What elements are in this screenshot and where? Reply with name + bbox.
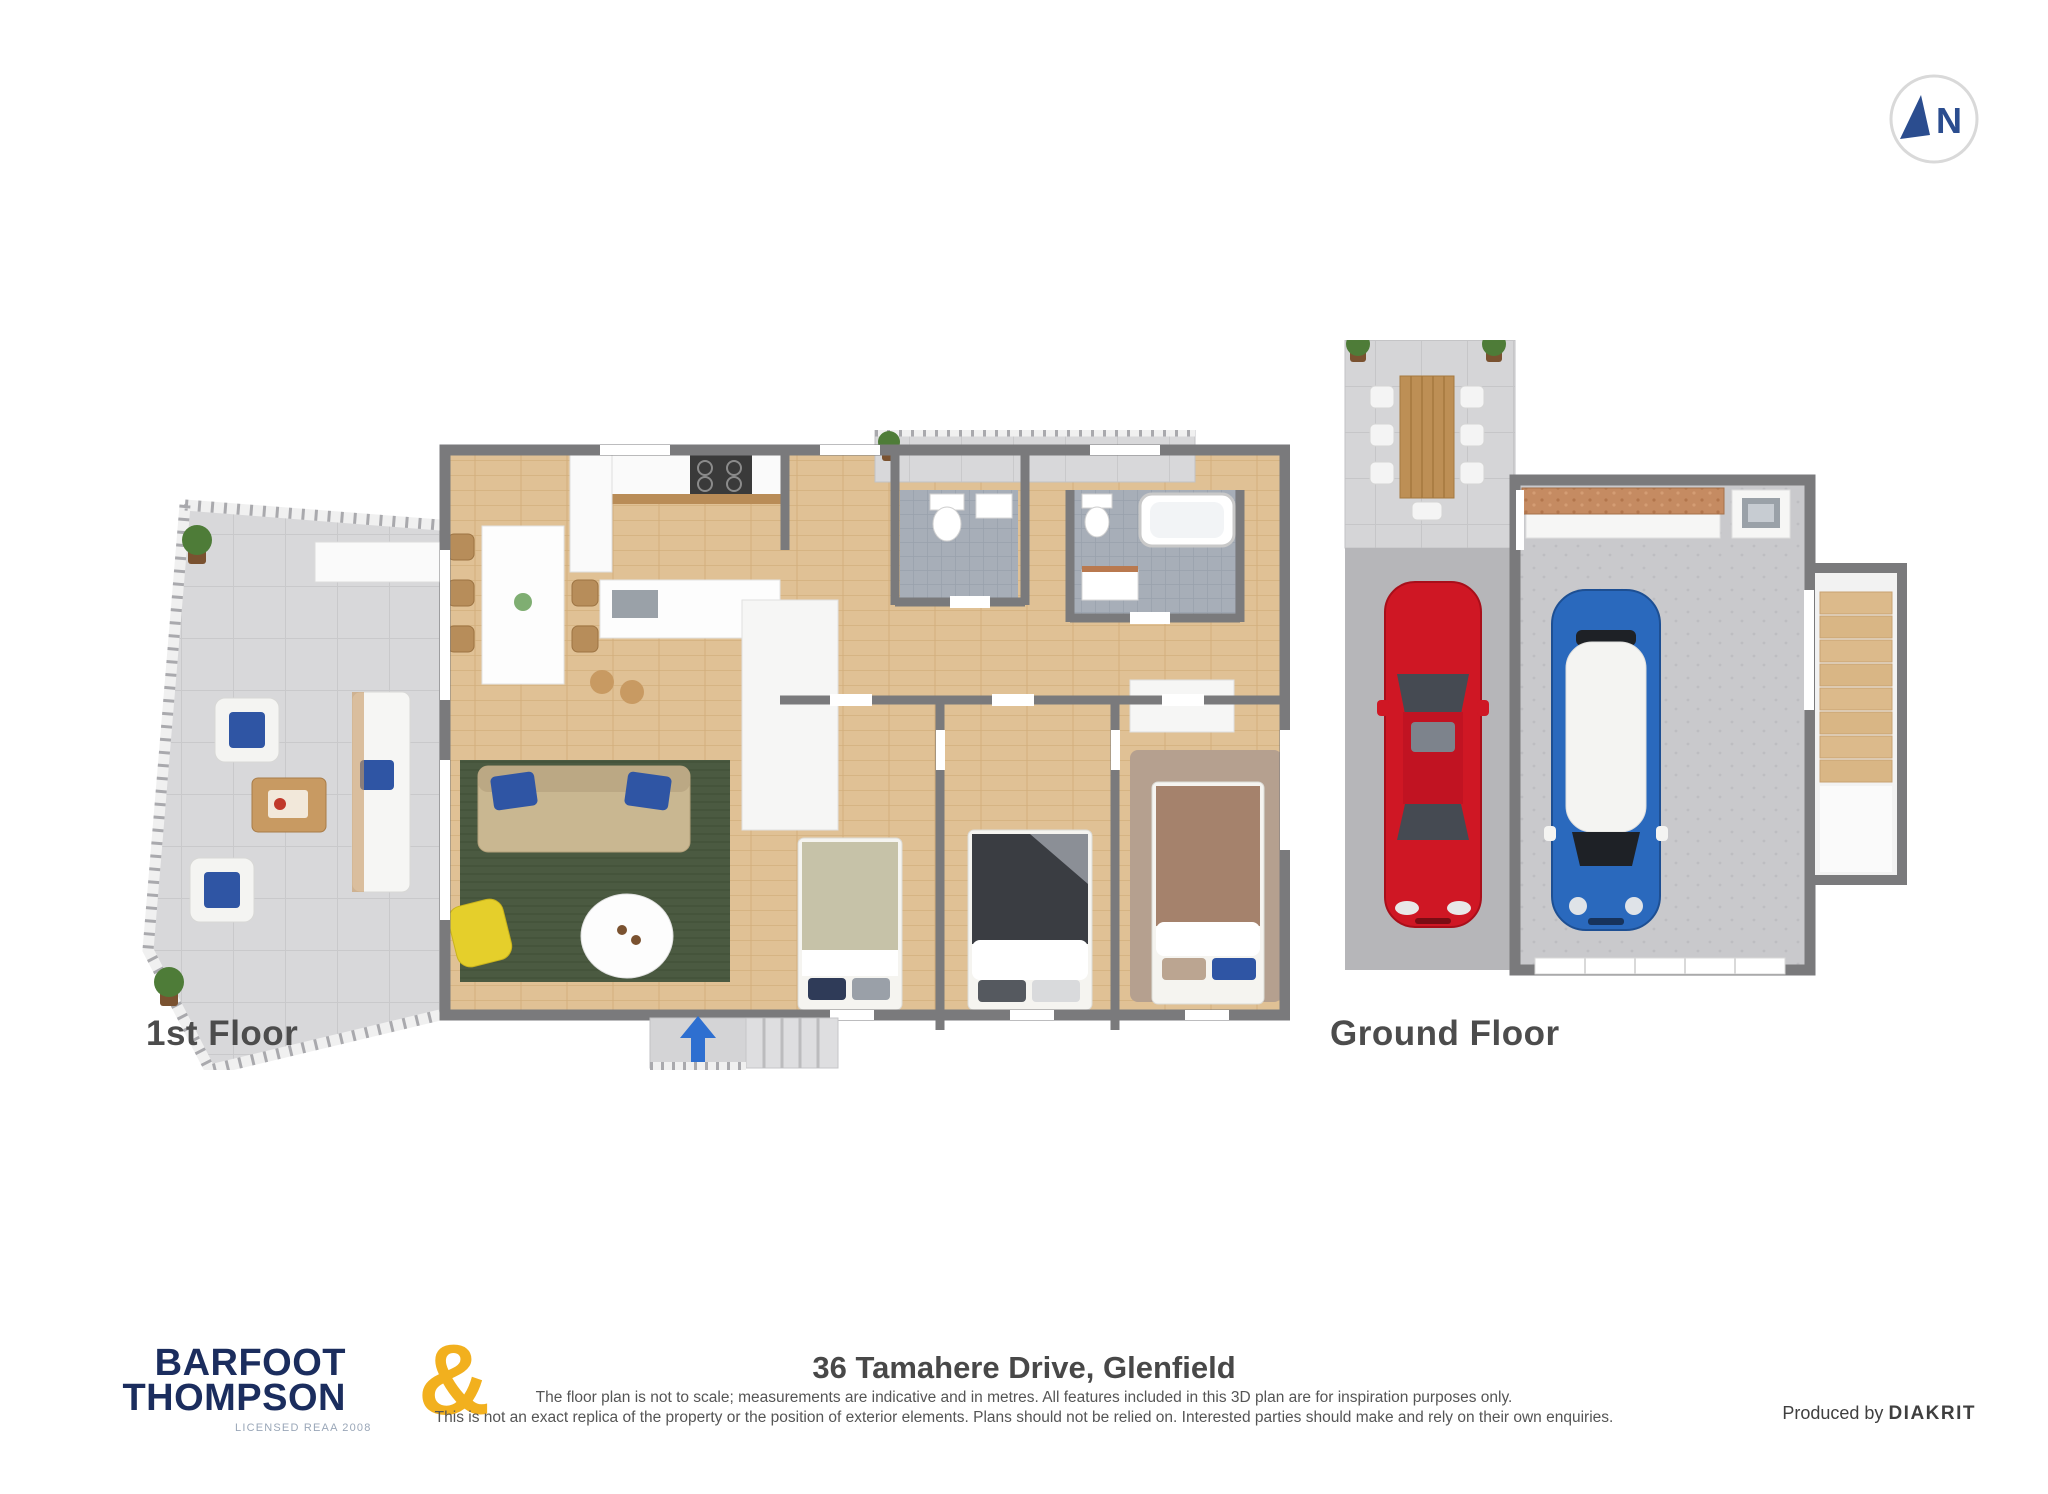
- toilet-icon: [930, 494, 964, 541]
- producer-credit: Produced by DIAKRIT: [1782, 1403, 1976, 1425]
- wc-room: [900, 490, 1018, 602]
- outdoor-coffee-table: [252, 778, 326, 832]
- property-address: 36 Tamahere Drive, Glenfield: [0, 1350, 2048, 1386]
- garage-window: [1516, 490, 1524, 550]
- carport-driveway: [1345, 548, 1515, 970]
- patio: [1345, 340, 1515, 548]
- terrace: [148, 505, 445, 1070]
- bedroom-two: [968, 830, 1092, 1010]
- kitchen-fridge-cabinet: [570, 452, 612, 572]
- garage-door: [1535, 958, 1785, 974]
- first-floor-interior: [440, 430, 1290, 1030]
- living-room: [445, 760, 730, 982]
- entry-stairs: [650, 1016, 838, 1068]
- disclaimer-line-2: This is not an exact replica of the prop…: [0, 1409, 2048, 1427]
- wc-basin: [976, 494, 1012, 518]
- producer-brand: DIAKRIT: [1888, 1403, 1976, 1424]
- garage-sink: [1732, 490, 1790, 538]
- bathtub-icon: [1140, 494, 1234, 546]
- bed-single: [798, 838, 902, 1010]
- round-coffee-table: [581, 894, 673, 978]
- ground-floor-plan: [1330, 340, 1910, 980]
- outdoor-sofa: [352, 692, 410, 892]
- staircase: [1804, 568, 1902, 880]
- garage: [1515, 480, 1810, 974]
- bedroom-one: [798, 838, 902, 1010]
- produced-by-text: Produced by: [1782, 1403, 1883, 1423]
- stair-door-opening: [1804, 590, 1814, 710]
- first-floor-title: 1st Floor: [146, 1014, 298, 1054]
- hall-cupboard: [742, 600, 838, 830]
- compass-circle: [1891, 76, 1977, 162]
- kitchen-sink: [612, 590, 658, 618]
- disclaimer-line-1: The floor plan is not to scale; measurem…: [0, 1389, 2048, 1407]
- compass-north-letter: N: [1936, 100, 1962, 141]
- ground-floor-title: Ground Floor: [1330, 1014, 1560, 1054]
- living-sofa: [478, 766, 690, 852]
- bed-double-master: [1152, 782, 1264, 1004]
- compass: N: [1888, 73, 1980, 165]
- bathroom: [1072, 490, 1240, 618]
- stair-landing: [1820, 786, 1892, 872]
- outdoor-armchair: [190, 858, 254, 922]
- first-floor-plan: [130, 430, 1290, 1070]
- outdoor-armchair: [215, 698, 279, 762]
- garage-workbench: [1522, 488, 1724, 538]
- blue-car: [1544, 590, 1668, 930]
- red-car: [1377, 582, 1489, 927]
- bathroom-vanity: [1082, 570, 1138, 600]
- upper-balcony: [875, 430, 1195, 482]
- terrace-bench: [315, 542, 445, 582]
- bed-double-dark: [968, 830, 1092, 1010]
